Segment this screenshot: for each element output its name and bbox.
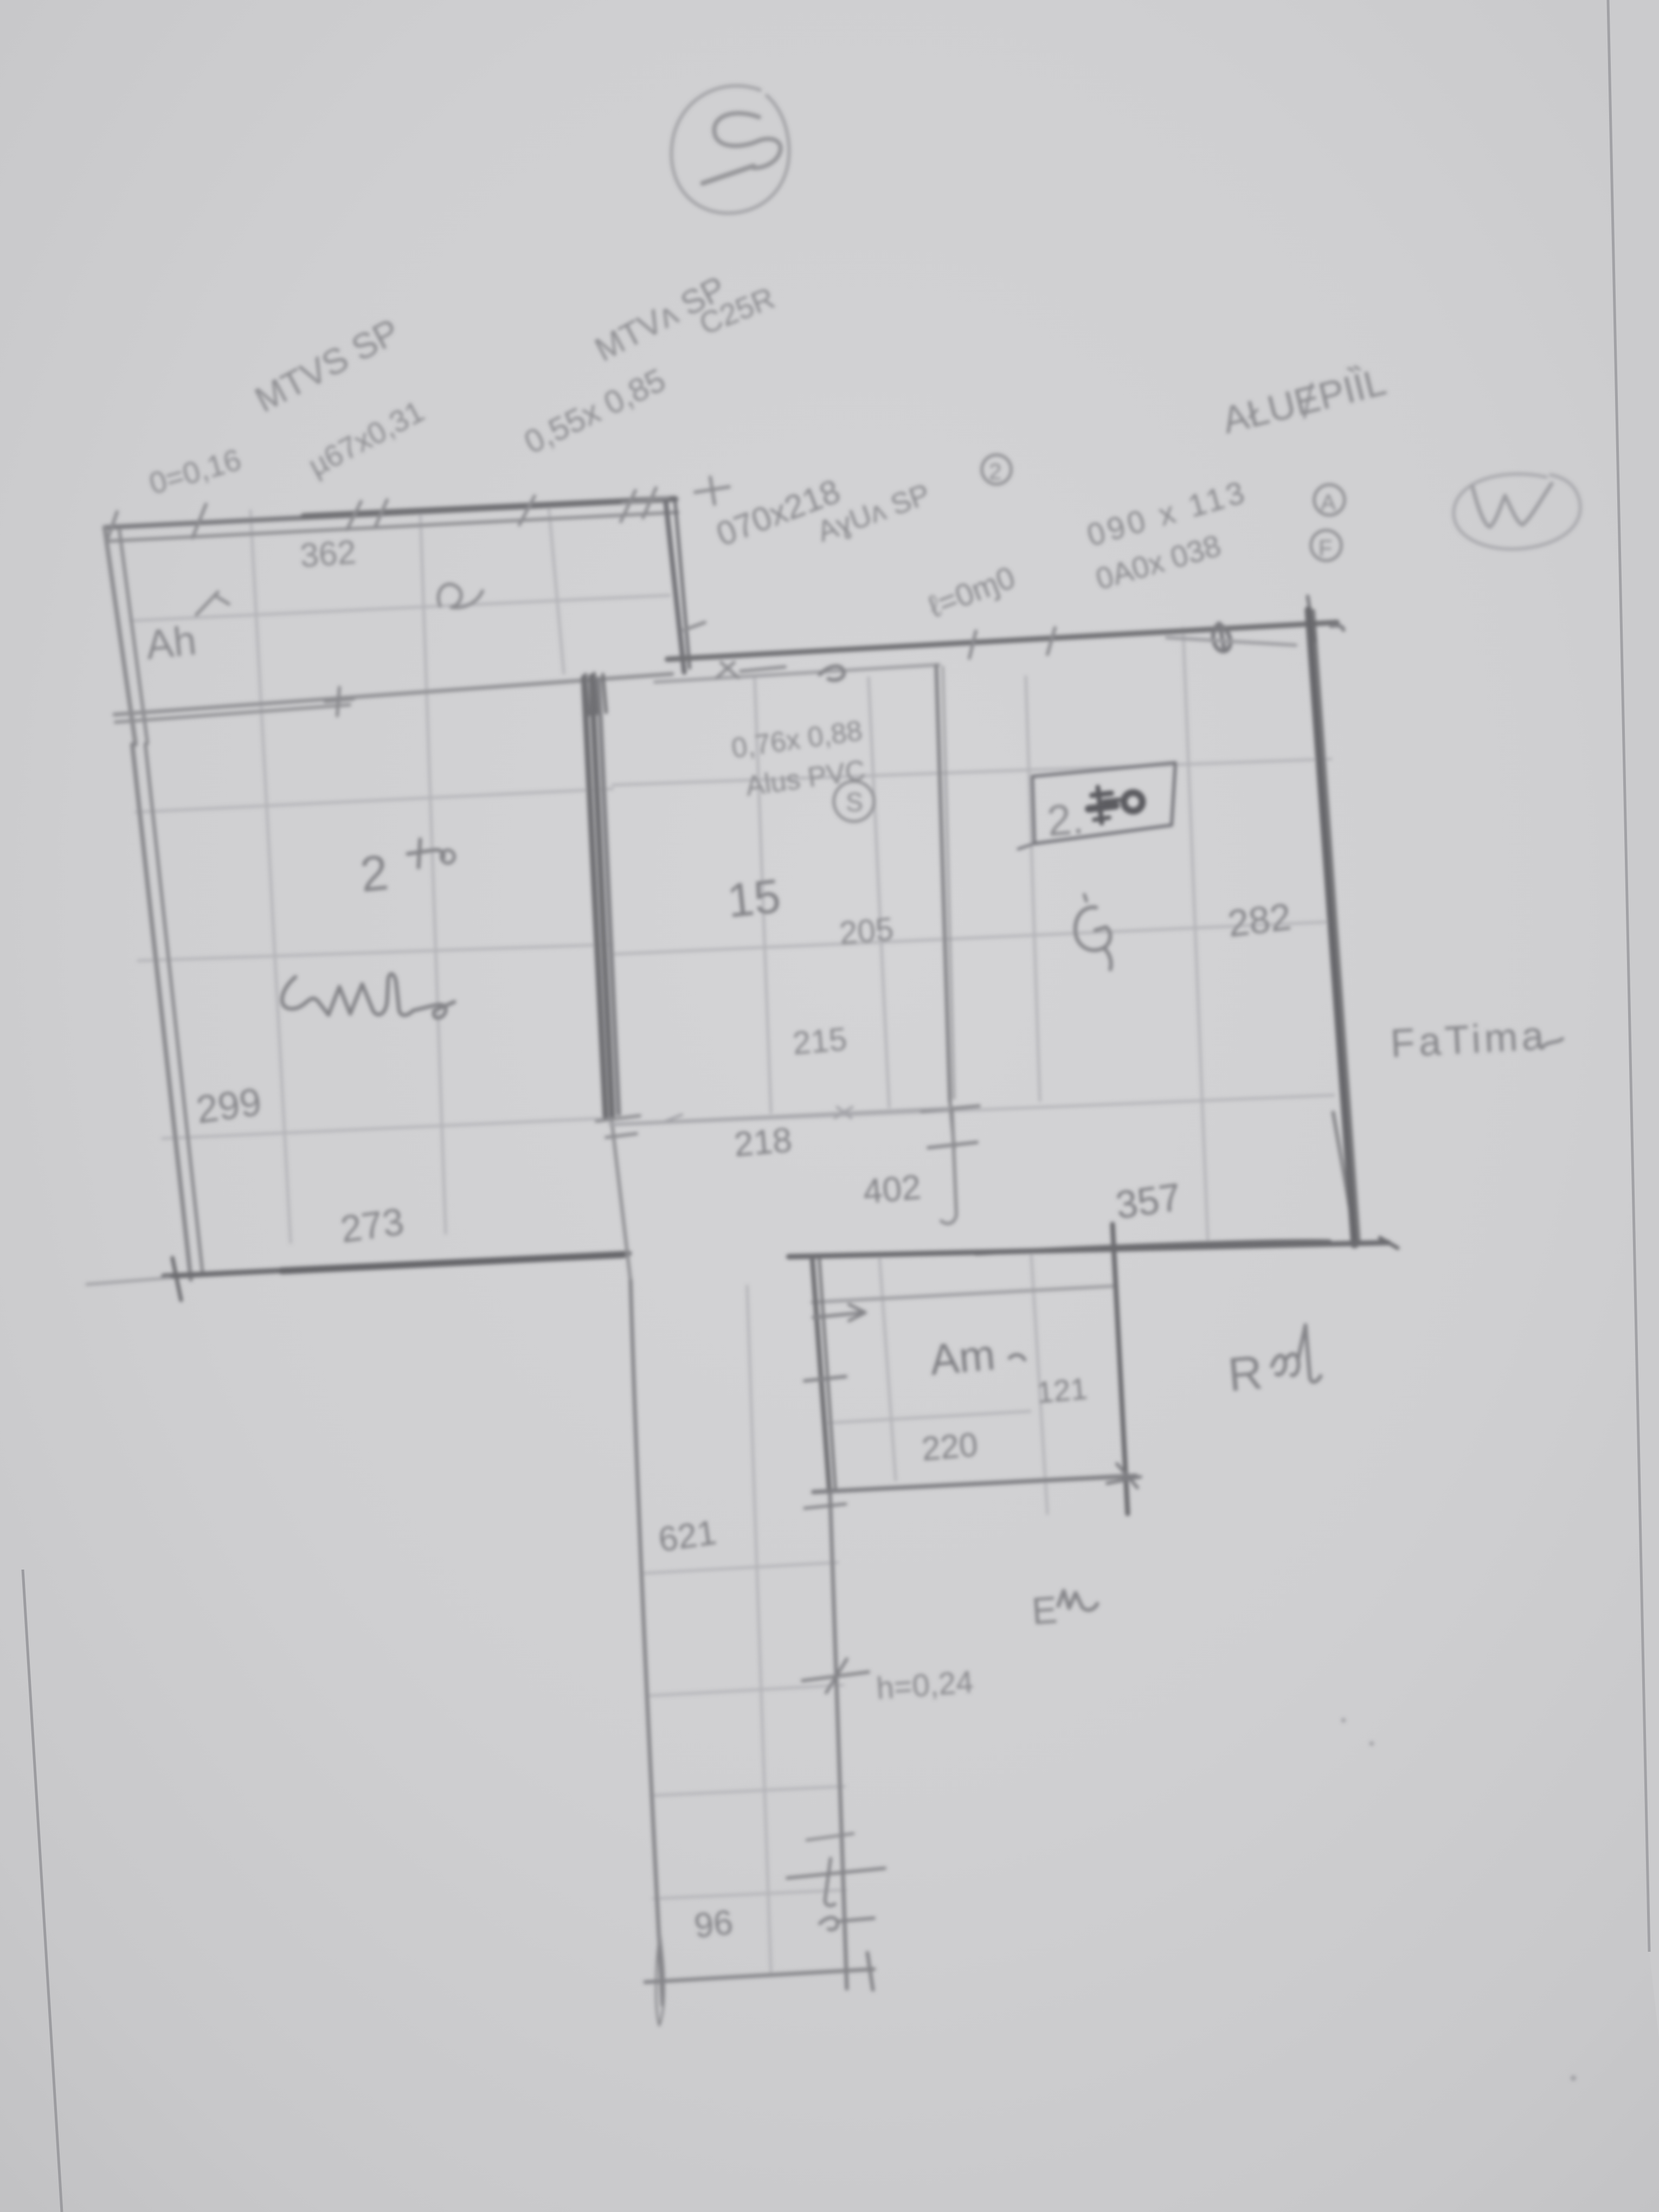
svg-text:Am: Am [928,1330,997,1384]
svg-text:E: E [1031,1589,1059,1632]
svg-text:2: 2 [357,845,391,903]
svg-text:h=0,24: h=0,24 [875,1664,974,1706]
svg-text:215: 215 [791,1020,848,1061]
svg-text:218: 218 [732,1120,794,1164]
svg-text:S: S [846,788,863,817]
svg-text:R: R [1226,1345,1265,1401]
svg-text:205: 205 [838,910,895,951]
svg-text:282: 282 [1225,895,1293,945]
svg-text:299: 299 [194,1080,264,1132]
svg-text:96: 96 [692,1902,735,1945]
svg-text:220: 220 [920,1426,979,1468]
svg-text:F: F [1319,535,1333,561]
svg-text:2.: 2. [1045,794,1085,845]
svg-text:402: 402 [861,1167,923,1211]
svg-text:357: 357 [1113,1175,1184,1227]
svg-text:273: 273 [338,1200,407,1250]
svg-text:FaTima: FaTima [1389,1013,1548,1066]
svg-text:15: 15 [725,869,783,928]
svg-text:621: 621 [656,1513,719,1559]
svg-text:362: 362 [299,533,357,575]
svg-text:A: A [1321,490,1336,515]
svg-text:2: 2 [989,459,1001,484]
svg-text:121: 121 [1036,1371,1089,1410]
svg-text:Ah: Ah [144,618,198,668]
